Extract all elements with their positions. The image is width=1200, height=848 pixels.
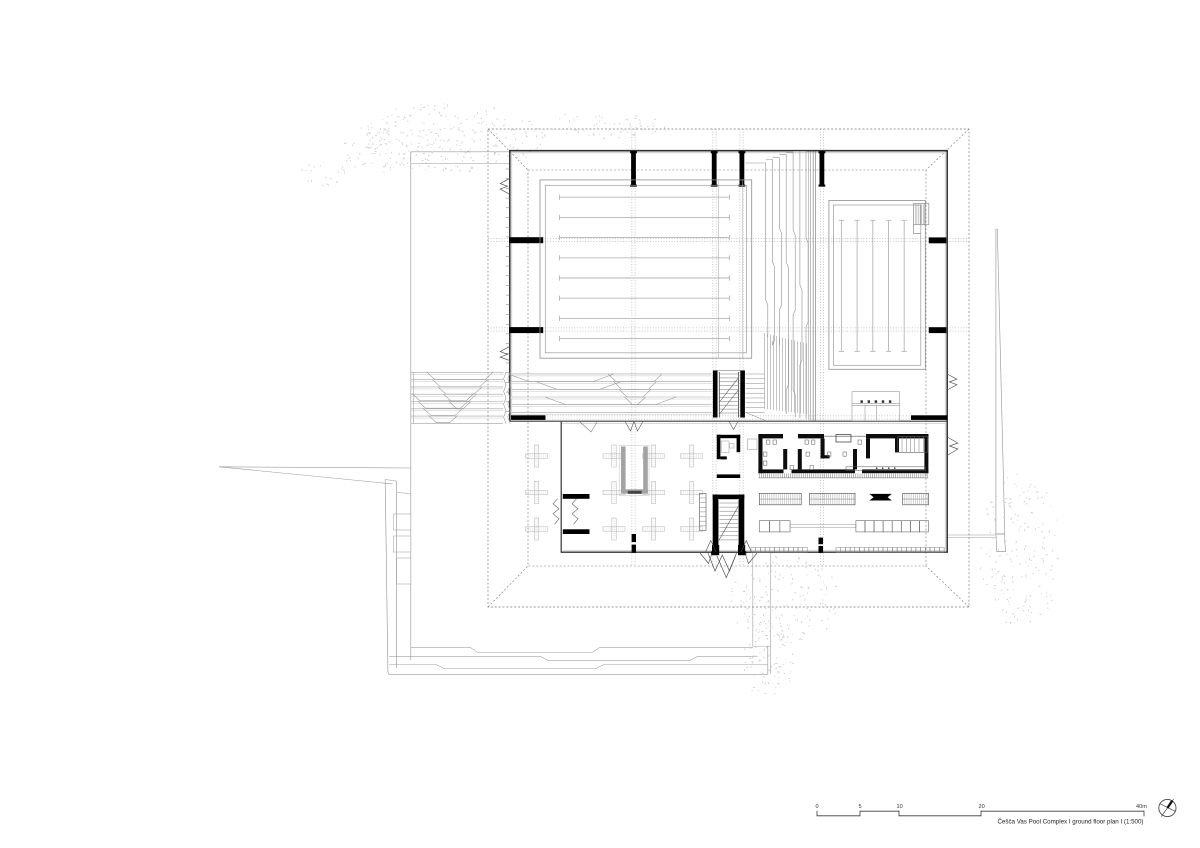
svg-text:0: 0 <box>816 804 819 810</box>
svg-text:Češča Vas Pool Complex I gro: Češča Vas Pool Complex I ground floor pl… <box>997 819 1143 826</box>
svg-text:20: 20 <box>979 804 985 810</box>
svg-text:5: 5 <box>859 804 862 810</box>
svg-text:40m: 40m <box>1136 804 1147 810</box>
svg-text:10: 10 <box>897 804 903 810</box>
